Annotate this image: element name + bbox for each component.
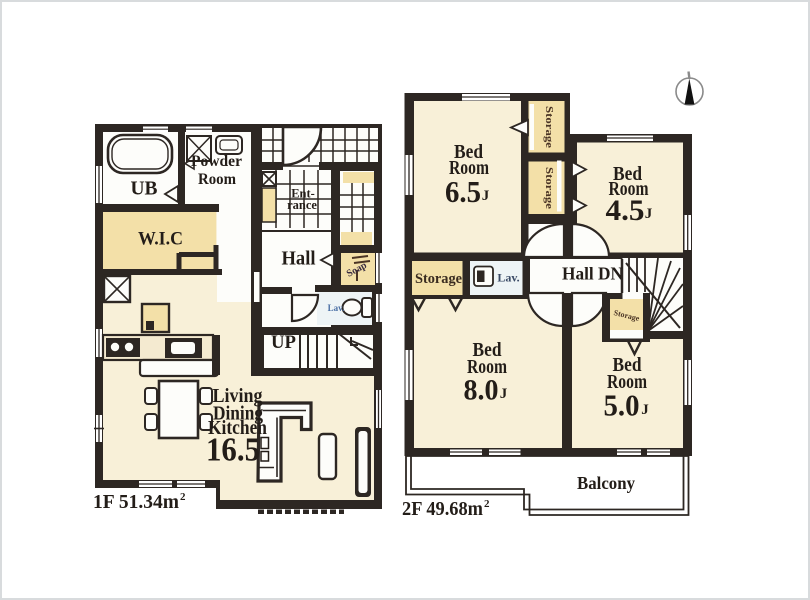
svg-text:Room: Room (198, 171, 236, 188)
svg-text:2F 49.68m: 2F 49.68m (402, 498, 483, 520)
svg-text:J: J (645, 206, 653, 222)
svg-text:Hall DN: Hall DN (562, 264, 623, 284)
svg-text:J: J (500, 386, 508, 402)
svg-text:Lav.: Lav. (497, 271, 519, 285)
svg-text:Storage: Storage (415, 271, 462, 287)
svg-text:4.5: 4.5 (606, 194, 645, 227)
svg-text:2: 2 (180, 491, 186, 503)
svg-text:UP: UP (271, 332, 296, 353)
svg-text:J: J (641, 402, 649, 418)
svg-text:rance: rance (287, 198, 317, 212)
svg-text:6.5: 6.5 (445, 174, 481, 209)
svg-text:Storage: Storage (543, 167, 555, 209)
svg-text:Balcony: Balcony (577, 473, 635, 493)
svg-text:16.5: 16.5 (206, 432, 260, 469)
svg-text:J: J (482, 188, 490, 204)
svg-text:Lav.: Lav. (328, 303, 345, 313)
svg-text:1F 51.34m: 1F 51.34m (93, 491, 179, 513)
svg-text:UB: UB (131, 179, 158, 200)
svg-text:5.0: 5.0 (604, 388, 640, 423)
svg-text:2: 2 (484, 498, 490, 510)
svg-text:W.I.C: W.I.C (138, 229, 183, 250)
svg-text:Hall: Hall (282, 248, 316, 270)
svg-text:Storage: Storage (543, 106, 555, 148)
svg-text:8.0: 8.0 (464, 374, 499, 407)
svg-text:Powder: Powder (191, 153, 242, 170)
